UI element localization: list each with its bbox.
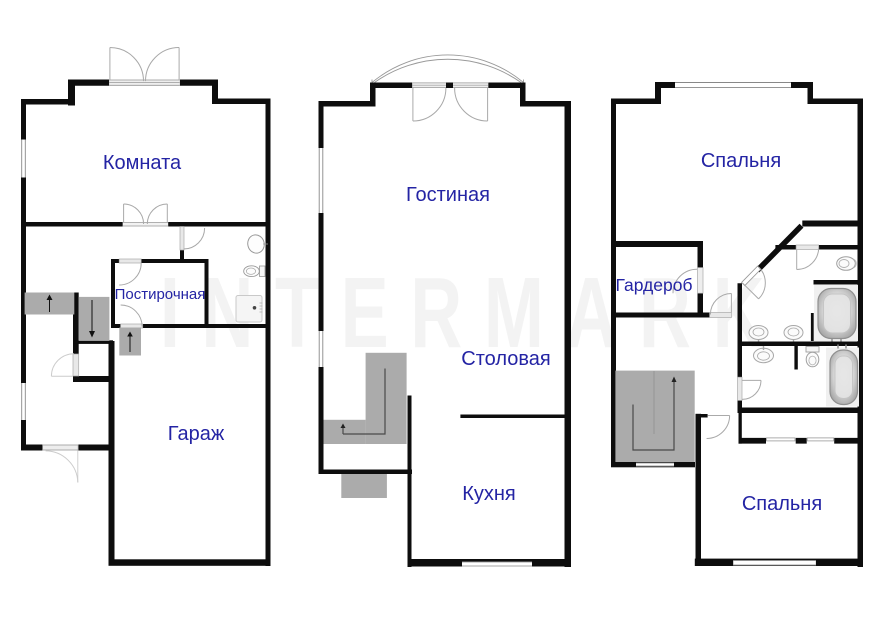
svg-text:Кухня: Кухня (462, 483, 516, 505)
svg-text:Спальня: Спальня (701, 150, 781, 172)
svg-text:Спальня: Спальня (742, 493, 822, 515)
svg-text:Гараж: Гараж (168, 423, 225, 445)
svg-text:Столовая: Столовая (461, 348, 550, 370)
svg-text:Комната: Комната (103, 152, 182, 174)
svg-text:Гостиная: Гостиная (406, 184, 490, 206)
svg-text:Гардероб: Гардероб (616, 275, 693, 295)
svg-text:Постирочная: Постирочная (115, 286, 206, 303)
